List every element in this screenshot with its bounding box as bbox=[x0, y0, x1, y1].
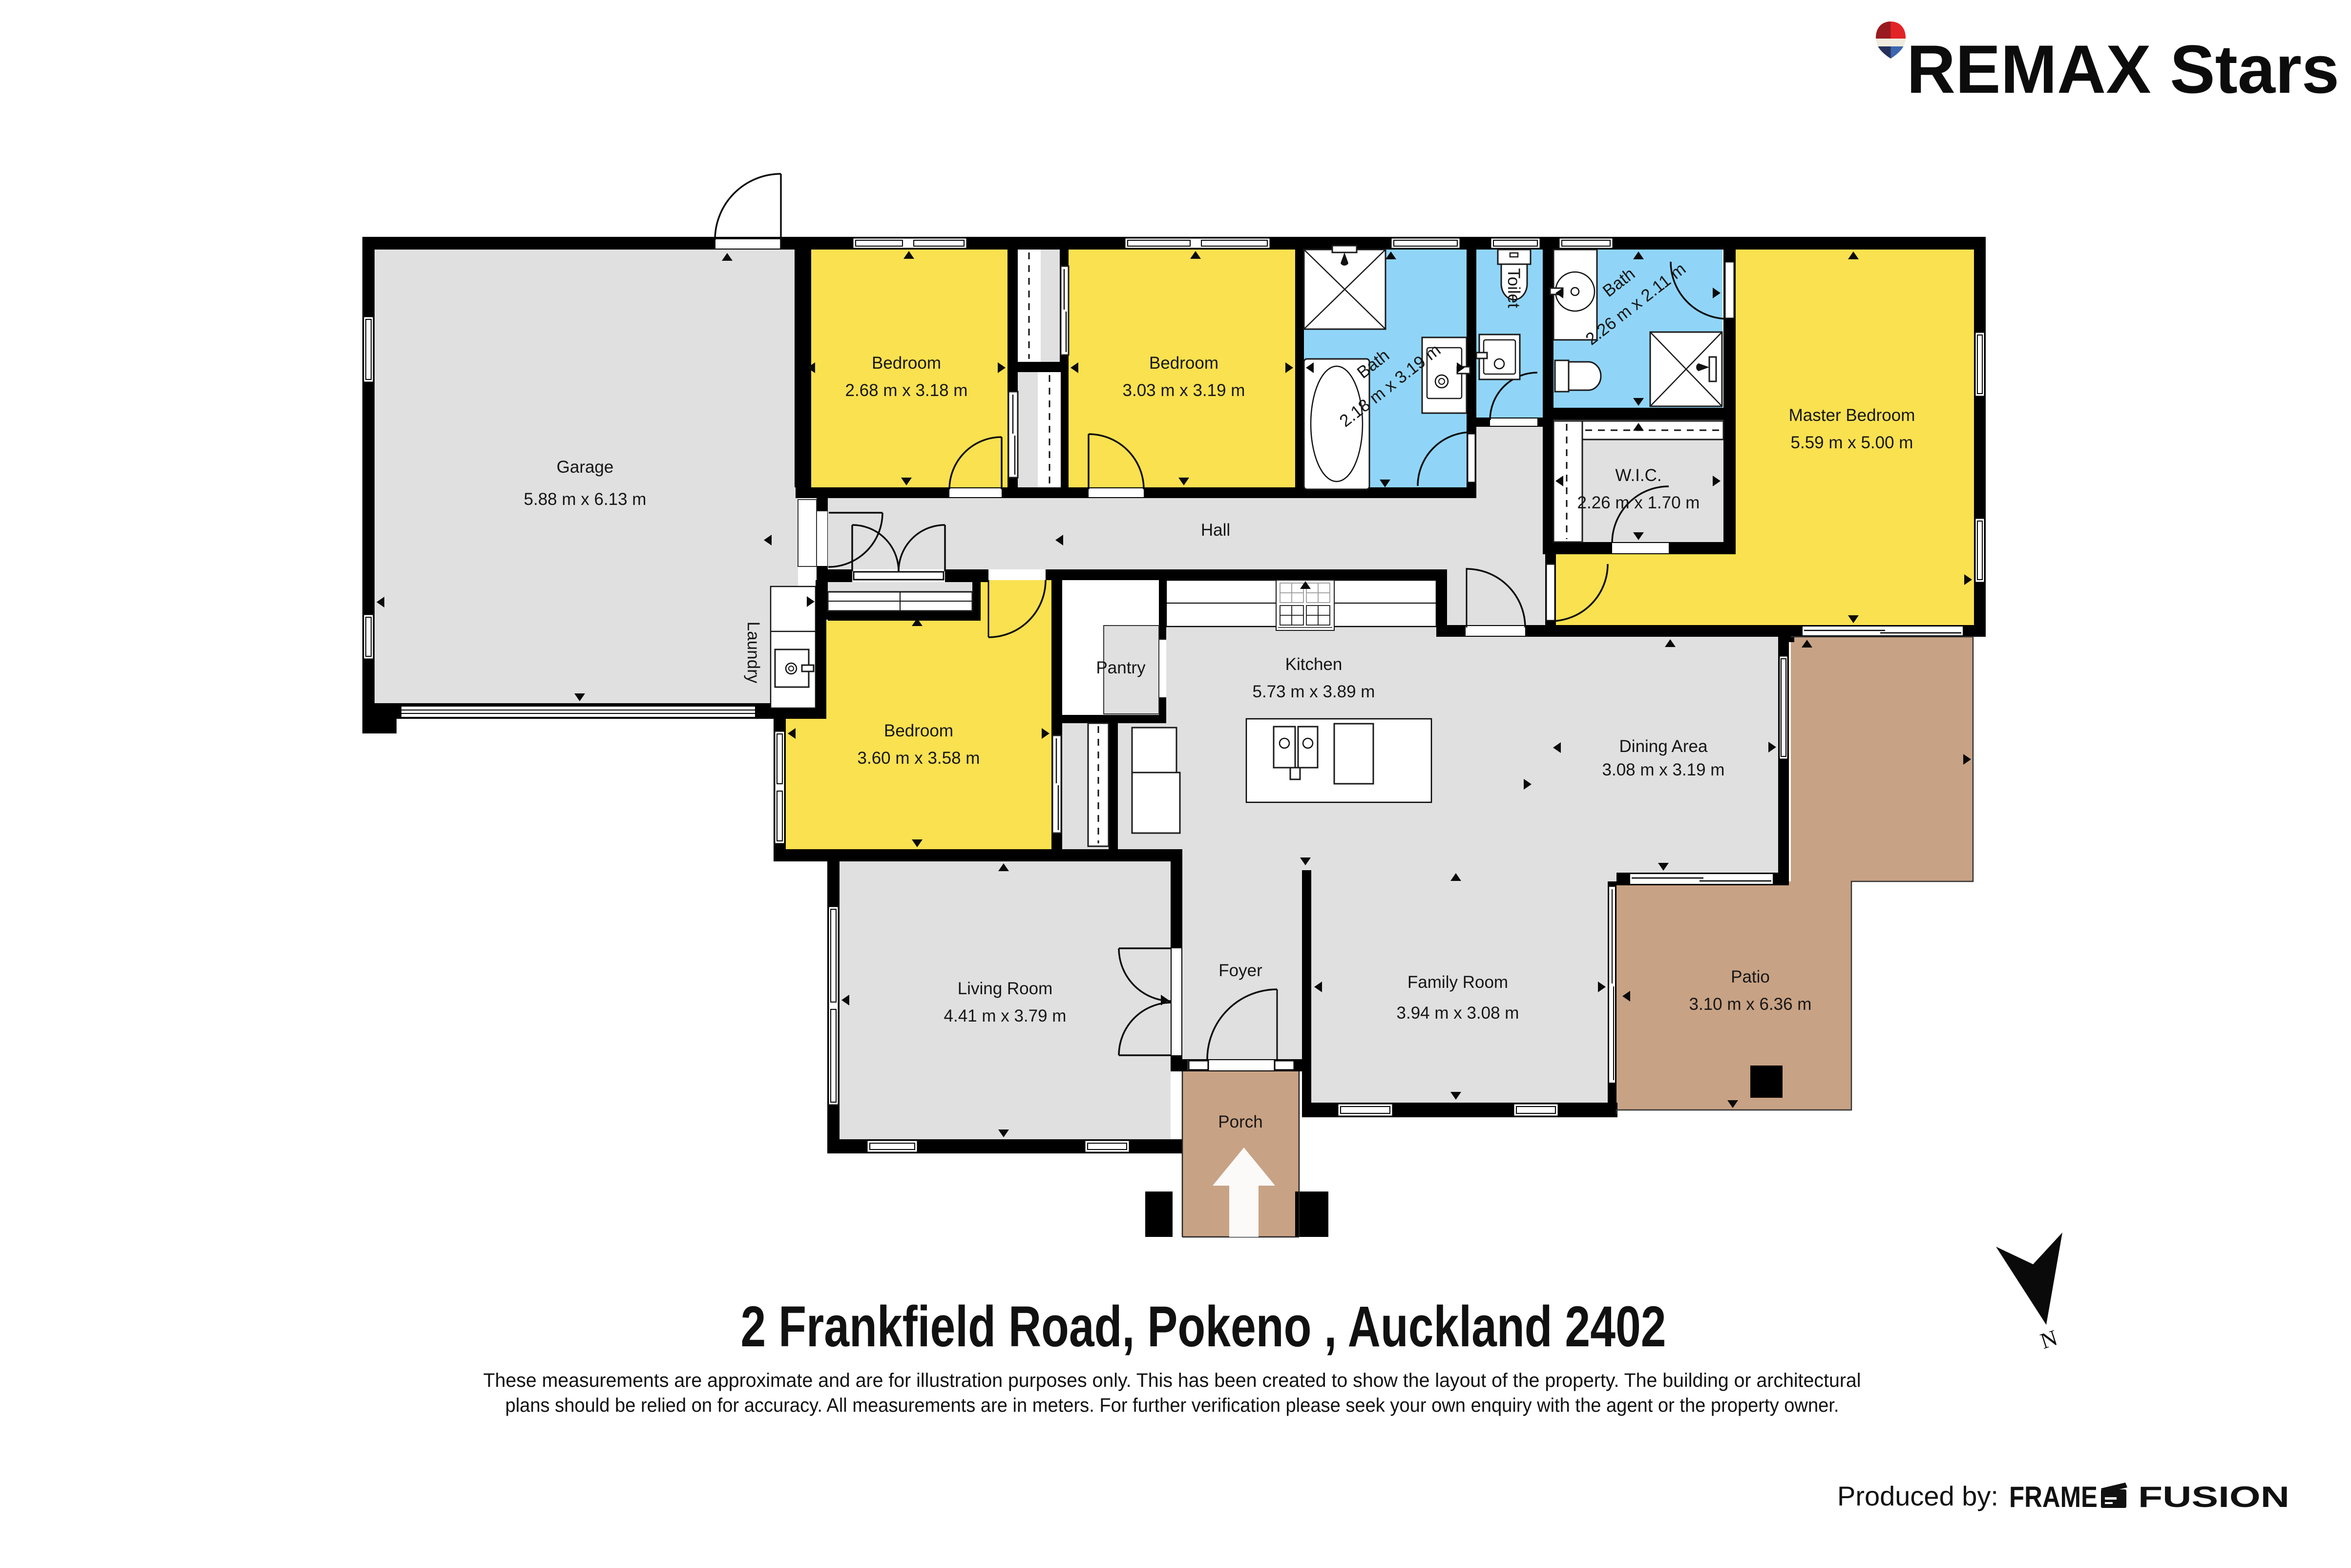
svg-text:2.26 m x 1.70 m: 2.26 m x 1.70 m bbox=[1577, 493, 1700, 512]
svg-text:Family Room: Family Room bbox=[1407, 973, 1508, 992]
svg-text:These measurements are approxi: These measurements are approximate and a… bbox=[483, 1370, 1861, 1391]
svg-text:Patio: Patio bbox=[1731, 967, 1770, 986]
svg-text:5.88 m x 6.13 m: 5.88 m x 6.13 m bbox=[524, 490, 647, 509]
svg-text:5.59 m x 5.00 m: 5.59 m x 5.00 m bbox=[1791, 433, 1913, 452]
svg-text:Bedroom: Bedroom bbox=[872, 354, 941, 373]
svg-text:plans should be relied on for: plans should be relied on for accuracy. … bbox=[505, 1395, 1839, 1416]
svg-text:Garage: Garage bbox=[557, 458, 614, 477]
svg-text:3.03 m x 3.19 m: 3.03 m x 3.19 m bbox=[1123, 381, 1245, 400]
svg-text:Laundry: Laundry bbox=[744, 622, 763, 684]
svg-text:Produced by:: Produced by: bbox=[1837, 1481, 1998, 1511]
svg-text:3.10 m x 6.36 m: 3.10 m x 6.36 m bbox=[1689, 995, 1812, 1014]
svg-text:Master Bedroom: Master Bedroom bbox=[1789, 406, 1915, 425]
svg-text:FRAME: FRAME bbox=[2009, 1481, 2098, 1513]
svg-text:Living Room: Living Room bbox=[958, 979, 1053, 998]
svg-text:2 Frankfield Road, Pokeno , Au: 2 Frankfield Road, Pokeno , Auckland 240… bbox=[741, 1295, 1666, 1359]
svg-text:3.08 m x 3.19 m: 3.08 m x 3.19 m bbox=[1602, 760, 1725, 779]
svg-text:3.60 m x 3.58 m: 3.60 m x 3.58 m bbox=[858, 749, 980, 768]
svg-text:FUSION: FUSION bbox=[2138, 1481, 2289, 1513]
svg-text:Bedroom: Bedroom bbox=[1149, 354, 1218, 373]
svg-text:Kitchen: Kitchen bbox=[1285, 655, 1343, 674]
svg-text:Porch: Porch bbox=[1218, 1112, 1262, 1131]
svg-text:2.68 m x 3.18 m: 2.68 m x 3.18 m bbox=[845, 381, 968, 400]
svg-text:Pantry: Pantry bbox=[1096, 658, 1146, 677]
svg-text:Bedroom: Bedroom bbox=[884, 721, 953, 740]
svg-text:Hall: Hall bbox=[1201, 521, 1230, 540]
svg-text:5.73 m x 3.89 m: 5.73 m x 3.89 m bbox=[1253, 682, 1375, 701]
svg-text:4.41 m x 3.79 m: 4.41 m x 3.79 m bbox=[944, 1006, 1067, 1025]
svg-text:Foyer: Foyer bbox=[1218, 961, 1262, 980]
svg-text:W.I.C.: W.I.C. bbox=[1615, 466, 1661, 485]
svg-text:REMAX Stars: REMAX Stars bbox=[1907, 31, 2339, 107]
svg-text:Toilet: Toilet bbox=[1504, 268, 1523, 308]
svg-text:Dining Area: Dining Area bbox=[1619, 737, 1708, 756]
svg-text:3.94 m x 3.08 m: 3.94 m x 3.08 m bbox=[1397, 1004, 1519, 1023]
